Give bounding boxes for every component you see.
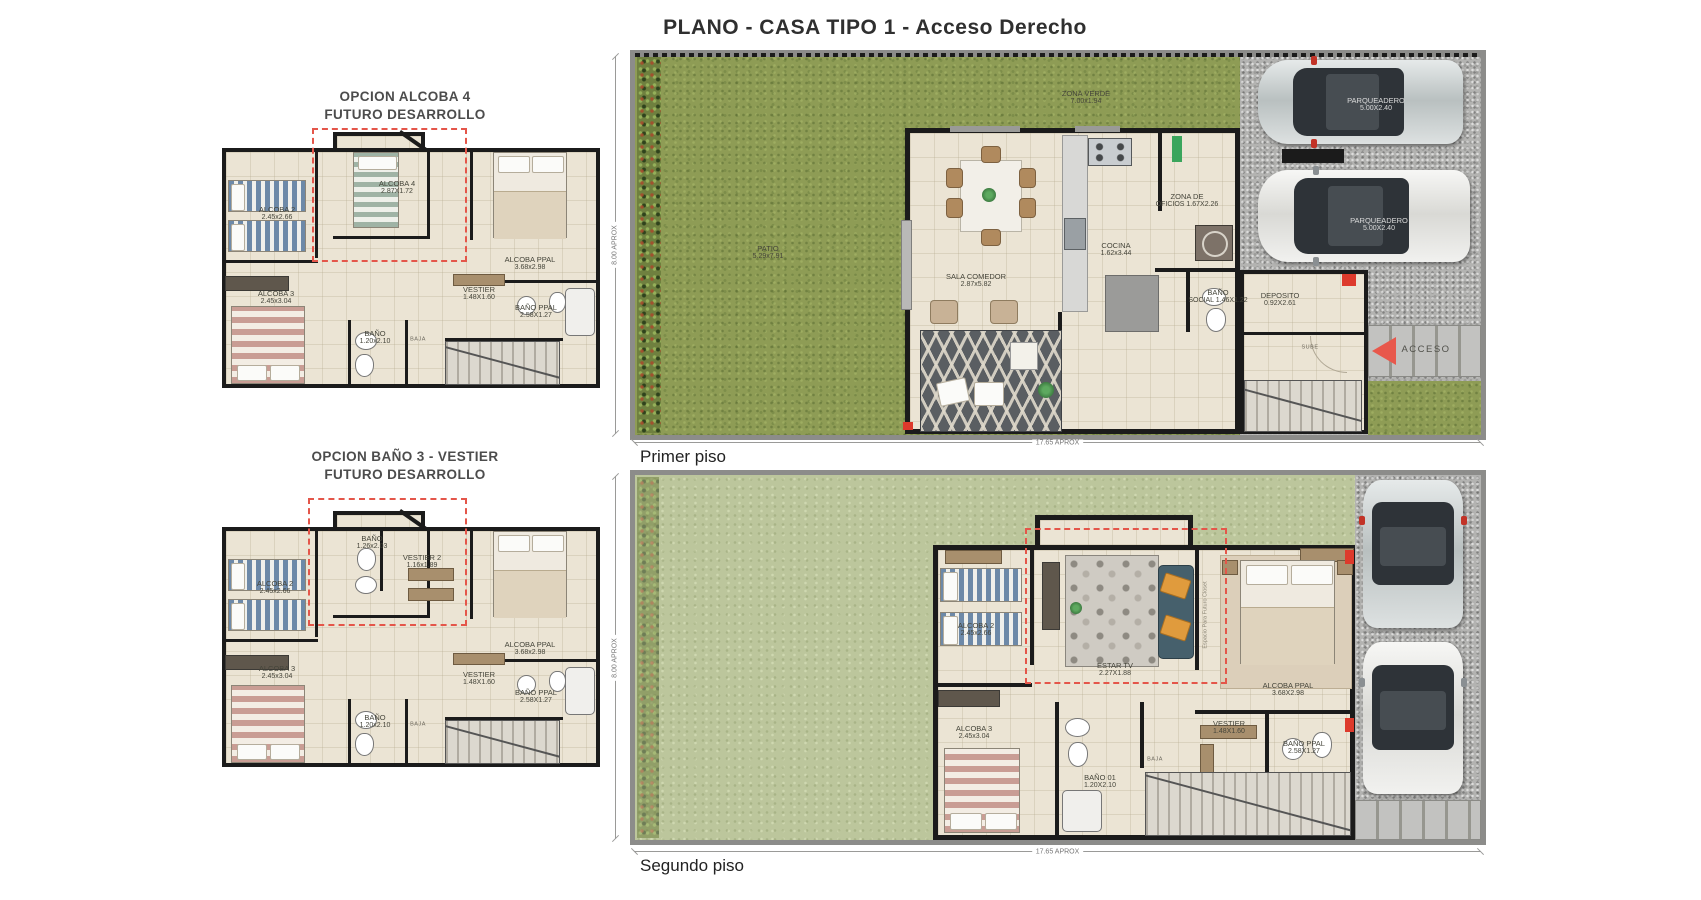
pillow xyxy=(270,744,300,760)
car-parqueadero-1 xyxy=(1258,60,1463,144)
pillow xyxy=(237,365,267,381)
stove xyxy=(1088,138,1132,166)
plan-b-title: OPCION BAÑO 3 - VESTIER FUTURO DESARROLL… xyxy=(205,448,605,483)
acceso-arrow xyxy=(1372,337,1396,365)
stairs xyxy=(1145,772,1351,836)
future-development-outline xyxy=(1025,528,1227,684)
plan-a-title: OPCION ALCOBA 4 FUTURO DESARROLLO xyxy=(205,88,605,123)
wall xyxy=(470,531,473,619)
wall xyxy=(1055,702,1059,838)
dimension-left-value: 8.00 APROX xyxy=(612,635,619,681)
shower xyxy=(1062,790,1102,832)
plan-opcion-alcoba-4: OPCION ALCOBA 4 FUTURO DESARROLLO xyxy=(205,88,605,398)
car-mirror xyxy=(1311,139,1317,148)
pillow xyxy=(1291,565,1333,585)
armchair xyxy=(990,300,1018,324)
desk xyxy=(938,690,1000,707)
future-development-outline xyxy=(308,498,467,626)
wall xyxy=(1140,702,1144,768)
stair-stringer xyxy=(445,345,560,382)
sink xyxy=(517,675,536,694)
plant xyxy=(1038,382,1054,398)
wall xyxy=(505,659,600,662)
pillow xyxy=(270,365,300,381)
toilet xyxy=(1206,308,1226,332)
pillow xyxy=(231,563,245,590)
coffee-table xyxy=(1010,342,1038,370)
floor-cushion xyxy=(974,382,1004,406)
alcoba3-bed xyxy=(231,685,305,763)
floorplan-sheet: PLANO - CASA TIPO 1 - Acceso Derecho OPC… xyxy=(0,0,1701,900)
washing-machine xyxy=(1195,225,1233,261)
toilet xyxy=(1312,732,1332,758)
wall xyxy=(405,320,408,388)
stair-stringer xyxy=(1244,387,1362,424)
toilet xyxy=(355,733,374,756)
closet xyxy=(453,653,505,665)
sliding-door xyxy=(901,220,912,310)
pillow xyxy=(950,813,982,830)
stair-stringer xyxy=(445,724,560,761)
pillow xyxy=(943,616,958,645)
alcoba3-bed xyxy=(231,306,305,384)
dimension-bottom-value: 17.65 APROX xyxy=(1032,848,1084,855)
car-roof xyxy=(1326,74,1379,129)
shower xyxy=(565,667,595,715)
wheel-stop xyxy=(1282,149,1344,163)
toilet xyxy=(549,292,566,313)
plan-a-title-line2: FUTURO DESARROLLO xyxy=(205,106,605,124)
shower xyxy=(565,288,595,336)
blanket xyxy=(1241,607,1334,665)
dimension-left-value: 8.00 APROX xyxy=(612,222,619,268)
car-parqueadero-1 xyxy=(1363,480,1463,628)
storage-block xyxy=(1105,275,1159,332)
red-column-marker xyxy=(903,422,913,430)
pillow xyxy=(985,813,1017,830)
plan-b-title-line2: FUTURO DESARROLLO xyxy=(205,466,605,484)
sink xyxy=(1202,288,1226,306)
dimension-left: 8.00 APROX xyxy=(615,476,616,839)
armchair xyxy=(930,300,958,324)
toilet xyxy=(355,354,374,377)
sink xyxy=(1065,718,1090,737)
window xyxy=(1075,126,1120,132)
master-bed xyxy=(493,531,567,617)
plan-segundo-piso: 8.00 APROX 17.65 APROX Segundo piso ALCO… xyxy=(610,470,1490,890)
pillow xyxy=(943,572,958,601)
car-mirror xyxy=(1313,257,1319,266)
future-development-outline xyxy=(312,128,467,262)
pillow xyxy=(532,156,564,173)
car-parqueadero-2 xyxy=(1258,170,1470,262)
twin-bed xyxy=(228,180,306,212)
plan-primer-piso: 8.00 APROX 17.65 APROX Primer piso ZONA … xyxy=(610,50,1490,470)
segundo-piso-caption: Segundo piso xyxy=(640,856,744,876)
dining-chair xyxy=(946,168,963,188)
twin-bed xyxy=(228,599,306,631)
stairs xyxy=(445,720,560,764)
wall xyxy=(1240,332,1368,335)
closet xyxy=(453,274,505,286)
twin-bed xyxy=(940,568,1022,602)
dimension-bottom: 17.65 APROX xyxy=(634,851,1481,852)
twin-bed xyxy=(228,559,306,591)
living-rug xyxy=(920,330,1062,432)
fence-line xyxy=(635,53,1481,57)
primer-piso-caption: Primer piso xyxy=(640,447,726,467)
toilet xyxy=(1068,742,1088,767)
car-mirror xyxy=(1461,678,1467,687)
dining-chair xyxy=(1019,168,1036,188)
closet xyxy=(945,550,1002,564)
dimension-bottom: 17.65 APROX xyxy=(634,442,1481,443)
pillow xyxy=(237,744,267,760)
twin-bed xyxy=(940,612,1022,646)
car-mirror xyxy=(1359,678,1365,687)
sink xyxy=(355,711,377,729)
wall xyxy=(348,699,351,767)
garden-strip xyxy=(1368,381,1481,435)
centerpiece-plant xyxy=(982,188,996,202)
wall xyxy=(222,260,318,263)
wall xyxy=(1195,710,1355,714)
twin-bed xyxy=(228,220,306,252)
master-bed xyxy=(1240,560,1335,664)
wall xyxy=(1186,272,1190,332)
desk xyxy=(225,655,289,670)
pillow xyxy=(498,535,530,552)
plan-opcion-bano3-vestier: OPCION BAÑO 3 - VESTIER FUTURO DESARROLL… xyxy=(205,448,605,778)
pillow xyxy=(231,184,245,211)
alcoba3-bed xyxy=(944,748,1020,833)
dining-chair xyxy=(946,198,963,218)
car-roof xyxy=(1328,186,1383,247)
dining-chair xyxy=(981,146,1001,163)
sink xyxy=(517,296,536,315)
red-column-marker xyxy=(1345,550,1354,564)
shrub-border xyxy=(637,57,661,433)
wall xyxy=(1155,268,1240,272)
plan-b-title-line1: OPCION BAÑO 3 - VESTIER xyxy=(205,448,605,466)
closet xyxy=(1200,725,1257,739)
wall xyxy=(348,320,351,388)
blanket xyxy=(494,570,566,618)
wall xyxy=(1158,133,1162,211)
pillow xyxy=(231,224,245,251)
fridge xyxy=(1064,218,1086,250)
stairs xyxy=(1244,380,1362,432)
car-parqueadero-2 xyxy=(1363,642,1463,794)
pillow xyxy=(498,156,530,173)
wall xyxy=(222,639,318,642)
wall xyxy=(470,152,473,240)
dining-chair xyxy=(981,229,1001,246)
window xyxy=(950,126,1020,132)
red-column-marker xyxy=(1345,718,1354,732)
car-mirror xyxy=(1461,516,1467,525)
pillow xyxy=(1246,565,1288,585)
car-mirror xyxy=(1313,166,1319,175)
dining-chair xyxy=(1019,198,1036,218)
plan-a-title-line1: OPCION ALCOBA 4 xyxy=(205,88,605,106)
utility-accent xyxy=(1172,136,1182,162)
desk xyxy=(225,276,289,291)
blanket xyxy=(494,191,566,239)
car-roof xyxy=(1380,527,1446,565)
pillow xyxy=(532,535,564,552)
sink xyxy=(355,332,377,350)
stairs xyxy=(445,341,560,385)
wall xyxy=(505,280,600,283)
stair-stringer xyxy=(1145,772,1351,836)
toilet xyxy=(549,671,566,692)
red-column-marker xyxy=(1342,274,1356,286)
sink xyxy=(1282,738,1304,760)
shrub-border xyxy=(637,477,659,838)
dimension-bottom-value: 17.65 APROX xyxy=(1032,439,1084,446)
car-mirror xyxy=(1359,516,1365,525)
pillow xyxy=(231,603,245,630)
master-bed xyxy=(493,152,567,238)
wall xyxy=(405,699,408,767)
dimension-left: 8.00 APROX xyxy=(615,56,616,434)
page-title: PLANO - CASA TIPO 1 - Acceso Derecho xyxy=(0,16,1701,40)
wall xyxy=(937,683,1032,687)
car-mirror xyxy=(1311,56,1317,65)
car-roof xyxy=(1380,691,1446,731)
walkway xyxy=(1355,800,1481,840)
